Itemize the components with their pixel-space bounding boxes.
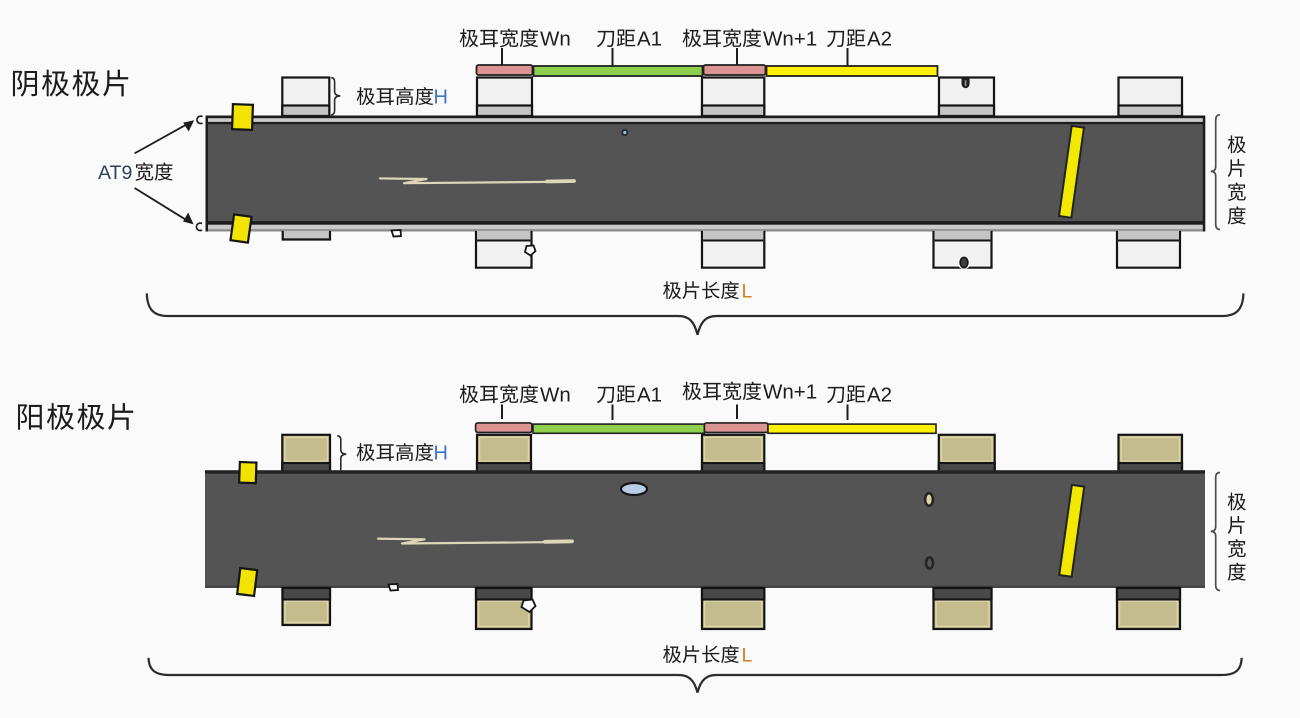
svg-text:Wn: Wn — [540, 384, 571, 407]
svg-text:H: H — [434, 443, 448, 465]
svg-text:A1: A1 — [637, 384, 662, 407]
svg-text:Wn+1: Wn+1 — [763, 28, 817, 51]
svg-text:Wn+1: Wn+1 — [763, 381, 817, 404]
svg-text:L: L — [742, 645, 753, 667]
svg-text:A1: A1 — [637, 28, 662, 51]
svg-text:Wn: Wn — [540, 28, 571, 51]
svg-text:H: H — [434, 87, 448, 109]
svg-text:A2: A2 — [867, 28, 892, 51]
svg-text:AT9: AT9 — [98, 162, 132, 184]
svg-text:L: L — [742, 281, 753, 303]
svg-text:A2: A2 — [867, 384, 892, 407]
